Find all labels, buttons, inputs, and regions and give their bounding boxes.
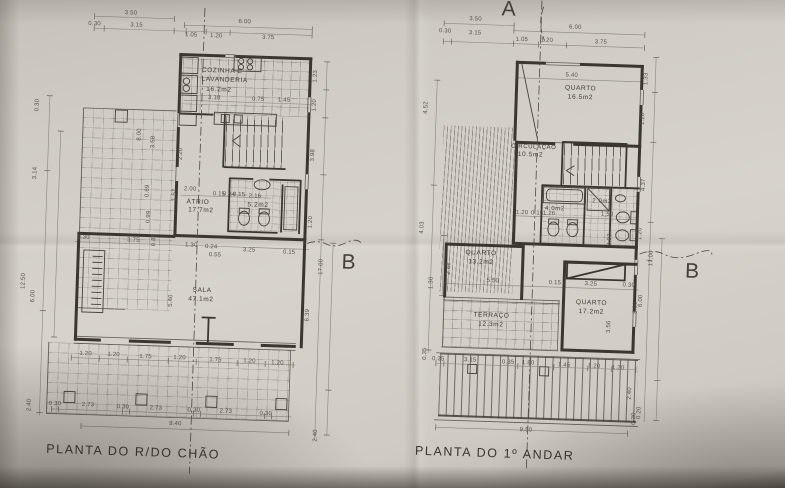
- dim-label: 1.20: [588, 363, 601, 370]
- dim-label: 1.45: [278, 97, 291, 104]
- dim-label: 1.80: [522, 360, 535, 367]
- dim-label: 3.75: [262, 35, 275, 42]
- room-area-terraco: 12.3m2: [478, 321, 504, 330]
- dim-label: 1.75: [139, 354, 152, 361]
- dim-label: 1.50: [601, 212, 614, 219]
- dim-label: 17.00: [648, 250, 656, 266]
- room-area-wc2: 2.0m2: [592, 197, 612, 206]
- dim-label: 3.14: [32, 167, 39, 180]
- dim-label: 1.20: [107, 352, 120, 359]
- dim-label: 0.35: [432, 356, 445, 363]
- room-area-quarto3: 17.2m2: [579, 308, 605, 317]
- dim-label: 3.15: [469, 30, 482, 37]
- dim-label: 1.57: [172, 188, 179, 201]
- dim-label: 2.73: [149, 405, 162, 412]
- room-area-circulacao: 10.5m2: [518, 151, 544, 160]
- dim-label: 6.00: [638, 294, 645, 307]
- section-marker-b: B: [341, 251, 357, 275]
- dim-label: 0.15: [548, 280, 561, 287]
- room-label-cozinha: COZINHA E: [202, 67, 243, 76]
- dim-label: 2.73: [82, 402, 95, 409]
- dim-label: 1.20: [271, 360, 284, 367]
- room-area-quarto1: 16.5m2: [568, 93, 594, 102]
- dim-label: 3.25: [243, 247, 256, 254]
- dim-label: 0.35: [422, 347, 429, 360]
- dim-label: 4.37: [641, 178, 648, 191]
- dim-label: 1.20: [243, 358, 256, 365]
- dim-label: 5.40: [565, 72, 578, 79]
- dim-label: 1.23: [313, 70, 320, 83]
- dim-label: 3.75: [594, 39, 607, 46]
- dim-label-total: 9.40: [169, 421, 182, 428]
- dim-label: 2.40: [313, 429, 320, 442]
- dimension-lines: [36, 12, 344, 441]
- dim-label: 1.33: [643, 72, 650, 85]
- ground-floor-plan: 3.50 0.30 3.15 6.00 1.05 1.20 3.75 COZIN…: [19, 0, 385, 488]
- room-label-cozinha-2: LAVANDERIA: [201, 76, 247, 86]
- dim-label: 4.03: [419, 221, 426, 234]
- dim-label: 2.20: [178, 148, 185, 161]
- dim-label: 1.30: [185, 242, 198, 249]
- dim-label: 4.52: [423, 101, 430, 114]
- dim-label: 0.30: [49, 401, 62, 408]
- dim-label: 1.20: [210, 33, 223, 40]
- dim-label: 3.15: [130, 22, 143, 29]
- dim-label: 0.30: [259, 411, 272, 418]
- dim-label: 0.30: [439, 28, 452, 35]
- dim-label: 1.20: [308, 216, 315, 229]
- room-label-sala: SALA: [192, 287, 211, 296]
- dim-label: 0.15: [283, 250, 296, 257]
- dim-label: 1.75: [209, 357, 222, 364]
- dim-label: 6.00: [30, 290, 37, 303]
- room-area-wc: 5.2m2: [247, 201, 268, 210]
- dim-label: 0.30: [77, 235, 90, 242]
- dim-label: 5.40: [168, 294, 175, 307]
- dim-label: 0.30: [631, 412, 638, 425]
- dim-label: 12.50: [21, 273, 29, 289]
- dim-label: 1.20: [173, 355, 186, 362]
- dim-label: 3.25: [584, 281, 597, 288]
- dim-label: 0.30: [34, 99, 41, 112]
- room-area-atrio: 17.7m2: [188, 206, 214, 215]
- room-label-terraco: TERRAÇO: [473, 311, 509, 320]
- dim-label: 1.26: [543, 211, 556, 218]
- first-floor-plan: A 3.50 0.30 3.15 6.00 1.05 1.20 3.75 QUA…: [404, 0, 750, 488]
- room-label-quarto3: QUARTO: [576, 299, 607, 308]
- dim-label: 3.56: [606, 320, 613, 333]
- fixtures: [468, 62, 642, 378]
- dim-label: 3.18: [208, 95, 221, 102]
- dim-label: 2.88: [446, 262, 453, 275]
- section-marker-b: B: [685, 259, 701, 283]
- dim-label: 1.20: [640, 112, 647, 125]
- axis-and-section-lines: [526, 1, 720, 475]
- dim-label: 6.39: [305, 309, 312, 322]
- photo-of-floor-plans: 3.50 0.30 3.15 6.00 1.05 1.20 3.75 COZIN…: [0, 0, 785, 488]
- dim-label: 0.99: [146, 211, 153, 224]
- dim-label-total: 9.50: [520, 427, 533, 434]
- dim-label: 1.05: [516, 37, 529, 44]
- dim-label: 2.16: [249, 193, 262, 200]
- dim-label: 0.30: [622, 282, 635, 289]
- dim-label: 2.73: [219, 409, 232, 416]
- dim-label: 6.00: [238, 19, 251, 26]
- room-area-sala: 47.1m2: [188, 295, 214, 304]
- dim-label: 1.30: [428, 276, 435, 289]
- dim-label: 17.00: [318, 259, 326, 275]
- dim-label: 3.15: [464, 357, 477, 364]
- dim-label: 0.30: [117, 404, 130, 411]
- dim-label: 3.58: [150, 136, 157, 149]
- dim-label: 0.15: [233, 192, 246, 199]
- dim-label: 1.20: [79, 351, 92, 358]
- dim-label: 3.07: [607, 233, 614, 246]
- dim-label: 1.20: [312, 99, 319, 112]
- dimension-lines: [423, 20, 672, 438]
- dim-label: 0.75: [252, 96, 265, 103]
- room-label-quarto2: QUARTO: [465, 249, 496, 258]
- room-area-cozinha: 16.2m2: [206, 86, 232, 95]
- dim-label: 0.30: [88, 21, 101, 28]
- dim-label: 1.20: [612, 365, 625, 372]
- dim-label: 8.00: [136, 128, 143, 141]
- dim-label: 0.24: [205, 244, 218, 251]
- dim-label: 3.98: [310, 149, 317, 162]
- dim-label: 0.55: [209, 252, 222, 259]
- dim-label: 2.40: [627, 387, 634, 400]
- dim-label: 1.20: [516, 210, 529, 217]
- dim-label: 1.45: [558, 362, 571, 369]
- dim-label: 2.40: [26, 399, 33, 412]
- room-label-quarto1: QUARTO: [565, 84, 596, 93]
- dim-label: 0.30: [187, 407, 200, 414]
- dim-label: 3.50: [125, 10, 138, 17]
- dim-label: 0.69: [145, 184, 152, 197]
- dim-label: 0.88: [151, 234, 158, 247]
- dim-label: 5.50: [487, 278, 500, 285]
- dim-label: 0.15: [531, 210, 544, 217]
- dim-label: 3.50: [469, 16, 482, 23]
- dim-label: 1.20: [637, 227, 644, 240]
- dim-label: 6.00: [569, 24, 582, 31]
- dim-label: 1.20: [540, 38, 553, 45]
- dim-label: 3.75: [127, 237, 140, 244]
- dim-label: 1.05: [185, 32, 198, 39]
- dim-label: 0.35: [502, 359, 515, 366]
- room-area-quarto2: 13.2m2: [468, 258, 494, 267]
- dim-label: 2.00: [184, 186, 197, 193]
- section-marker-a: A: [501, 0, 517, 22]
